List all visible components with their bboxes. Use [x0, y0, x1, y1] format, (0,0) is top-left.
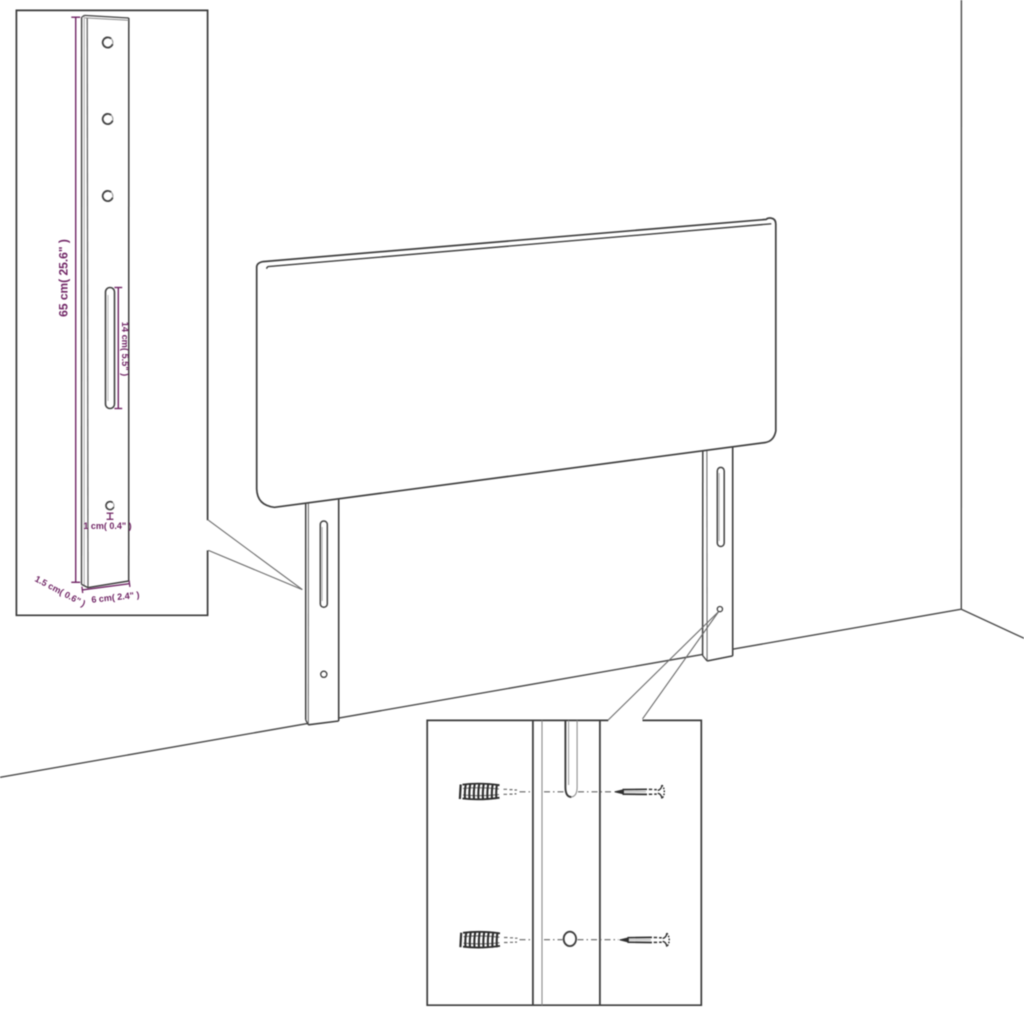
svg-text:65 cm( 25.6" ): 65 cm( 25.6" )	[57, 239, 71, 317]
svg-text:14 cm( 5.5" ): 14 cm( 5.5" )	[120, 322, 130, 376]
svg-text:1 cm( 0.4" ): 1 cm( 0.4" )	[83, 521, 131, 531]
